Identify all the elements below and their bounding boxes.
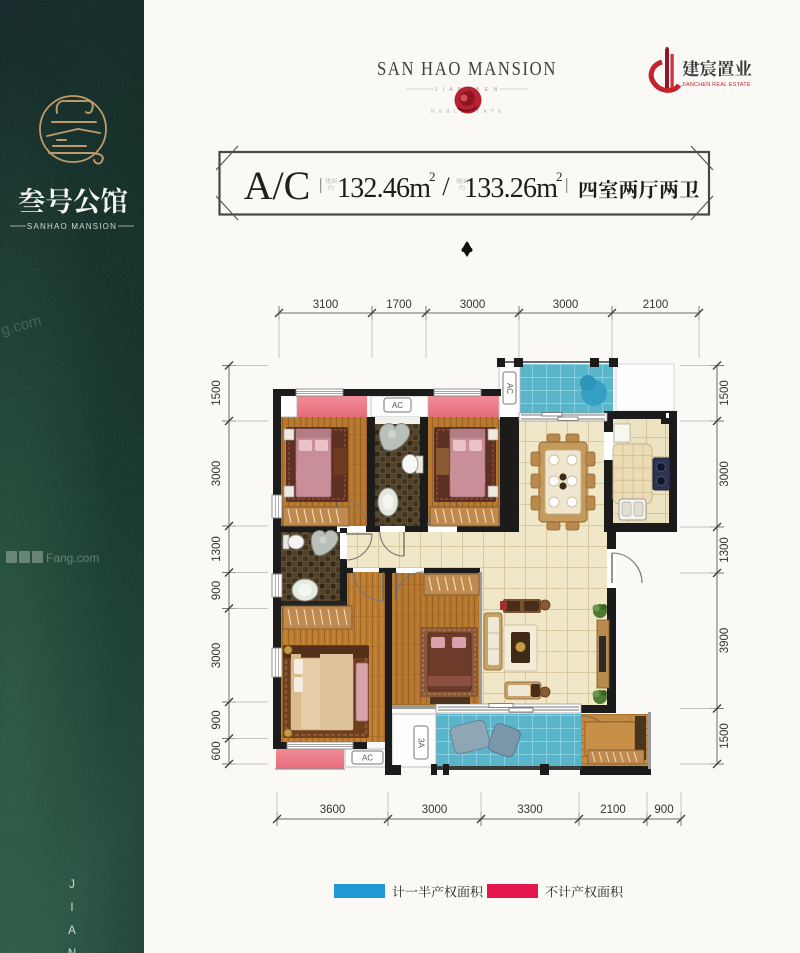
svg-text:2: 2 [556, 169, 563, 184]
svg-text:/: / [442, 172, 450, 201]
svg-text:SAN HAO MANSION: SAN HAO MANSION [377, 58, 557, 80]
svg-text:A/C: A/C [244, 163, 311, 208]
svg-text:2: 2 [429, 169, 436, 184]
svg-text:132.46m: 132.46m [337, 173, 431, 204]
svg-text:JIANCHEN REAL ESTATE: JIANCHEN REAL ESTATE [681, 82, 750, 88]
svg-text:133.26m: 133.26m [464, 173, 558, 204]
